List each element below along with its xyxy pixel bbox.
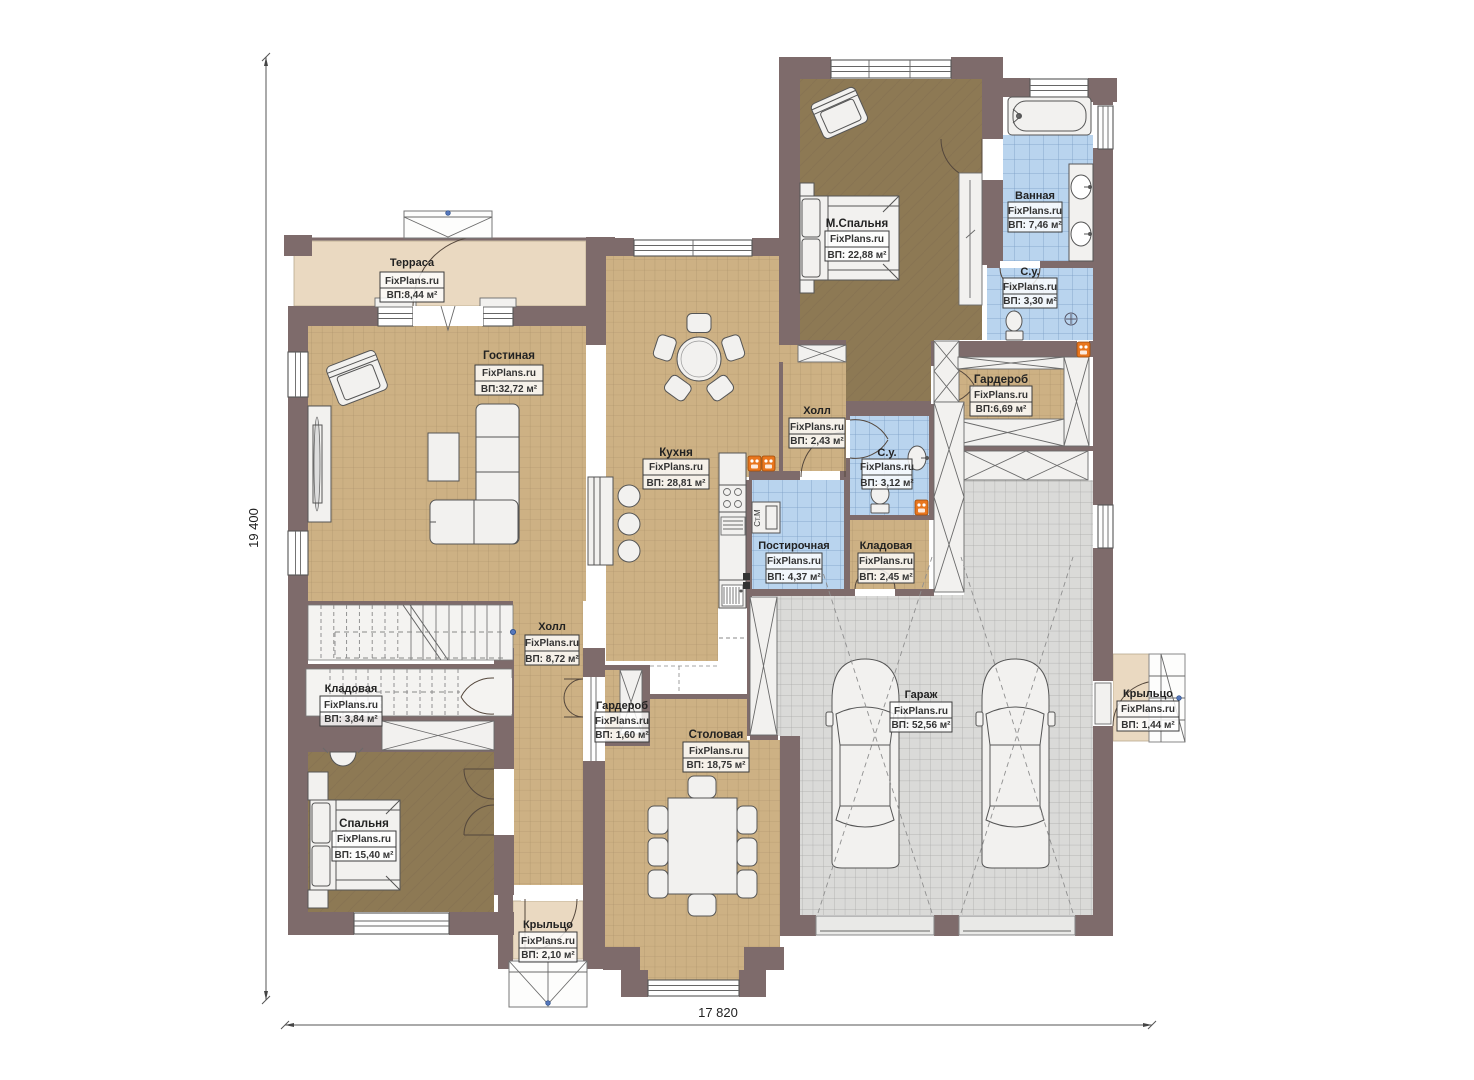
- svg-text:FixPlans.ru: FixPlans.ru: [860, 462, 914, 473]
- svg-text:Столовая: Столовая: [689, 729, 744, 741]
- svg-text:Кухня: Кухня: [659, 447, 693, 459]
- svg-text:Холл: Холл: [803, 405, 831, 417]
- svg-text:С.у.: С.у.: [877, 447, 896, 459]
- svg-text:ВП: 22,88 м²: ВП: 22,88 м²: [827, 250, 887, 261]
- svg-text:ВП: 1,44 м²: ВП: 1,44 м²: [1121, 720, 1175, 731]
- svg-text:Постирочная: Постирочная: [758, 540, 829, 552]
- svg-text:ВП: 7,46 м²: ВП: 7,46 м²: [1008, 220, 1062, 231]
- svg-text:FixPlans.ru: FixPlans.ru: [1121, 704, 1175, 715]
- svg-text:FixPlans.ru: FixPlans.ru: [894, 706, 948, 717]
- svg-text:ВП: 3,12 м²: ВП: 3,12 м²: [860, 478, 914, 489]
- svg-text:ВП: 28,81 м²: ВП: 28,81 м²: [646, 478, 706, 489]
- svg-text:FixPlans.ru: FixPlans.ru: [1008, 206, 1062, 217]
- svg-text:19 400: 19 400: [246, 508, 261, 548]
- svg-text:Спальня: Спальня: [339, 818, 389, 830]
- svg-text:ВП: 2,10 м²: ВП: 2,10 м²: [521, 950, 575, 961]
- svg-text:Кладовая: Кладовая: [325, 683, 378, 695]
- svg-text:ВП: 2,45 м²: ВП: 2,45 м²: [859, 572, 913, 583]
- svg-text:FixPlans.ru: FixPlans.ru: [830, 234, 884, 245]
- svg-text:ВП: 1,60 м²: ВП: 1,60 м²: [595, 730, 649, 741]
- svg-text:ВП: 18,75 м²: ВП: 18,75 м²: [686, 760, 746, 771]
- svg-text:FixPlans.ru: FixPlans.ru: [482, 368, 536, 379]
- svg-text:FixPlans.ru: FixPlans.ru: [689, 746, 743, 757]
- svg-text:ВП:8,44 м²: ВП:8,44 м²: [387, 290, 438, 301]
- svg-text:FixPlans.ru: FixPlans.ru: [324, 700, 378, 711]
- svg-text:ВП:6,69 м²: ВП:6,69 м²: [976, 404, 1027, 415]
- svg-text:ВП: 3,30 м²: ВП: 3,30 м²: [1003, 296, 1057, 307]
- svg-text:Гардероб: Гардероб: [596, 700, 648, 712]
- svg-text:17 820: 17 820: [698, 1005, 738, 1020]
- svg-text:Гостиная: Гостиная: [483, 350, 535, 362]
- svg-text:Кладовая: Кладовая: [860, 540, 913, 552]
- svg-text:Терраса: Терраса: [390, 257, 435, 269]
- svg-text:FixPlans.ru: FixPlans.ru: [1003, 282, 1057, 293]
- svg-text:FixPlans.ru: FixPlans.ru: [337, 834, 391, 845]
- svg-text:ВП:32,72 м²: ВП:32,72 м²: [481, 384, 538, 395]
- svg-text:FixPlans.ru: FixPlans.ru: [767, 556, 821, 567]
- svg-text:ВП: 2,43 м²: ВП: 2,43 м²: [790, 436, 844, 447]
- svg-text:FixPlans.ru: FixPlans.ru: [521, 936, 575, 947]
- svg-text:ВП: 3,84 м²: ВП: 3,84 м²: [324, 714, 378, 725]
- svg-text:ВП: 15,40 м²: ВП: 15,40 м²: [334, 850, 394, 861]
- svg-text:Крыльцо: Крыльцо: [1123, 688, 1173, 700]
- svg-text:С.у.: С.у.: [1020, 266, 1039, 278]
- svg-text:Ванная: Ванная: [1015, 190, 1055, 202]
- svg-text:FixPlans.ru: FixPlans.ru: [385, 276, 439, 287]
- svg-text:FixPlans.ru: FixPlans.ru: [974, 390, 1028, 401]
- svg-text:ВП: 4,37 м²: ВП: 4,37 м²: [767, 572, 821, 583]
- svg-text:Гараж: Гараж: [905, 689, 938, 701]
- svg-text:Ст.М: Ст.М: [753, 509, 762, 527]
- svg-text:М.Спальня: М.Спальня: [826, 218, 888, 230]
- svg-text:ВП: 8,72 м²: ВП: 8,72 м²: [525, 654, 579, 665]
- svg-text:FixPlans.ru: FixPlans.ru: [525, 638, 579, 649]
- svg-text:FixPlans.ru: FixPlans.ru: [790, 422, 844, 433]
- svg-text:Крыльцо: Крыльцо: [523, 919, 573, 931]
- svg-text:Гардероб: Гардероб: [974, 374, 1028, 386]
- svg-text:ВП: 52,56 м²: ВП: 52,56 м²: [891, 720, 951, 731]
- svg-text:FixPlans.ru: FixPlans.ru: [595, 716, 649, 727]
- svg-text:Холл: Холл: [538, 621, 566, 633]
- svg-text:FixPlans.ru: FixPlans.ru: [649, 462, 703, 473]
- svg-text:FixPlans.ru: FixPlans.ru: [859, 556, 913, 567]
